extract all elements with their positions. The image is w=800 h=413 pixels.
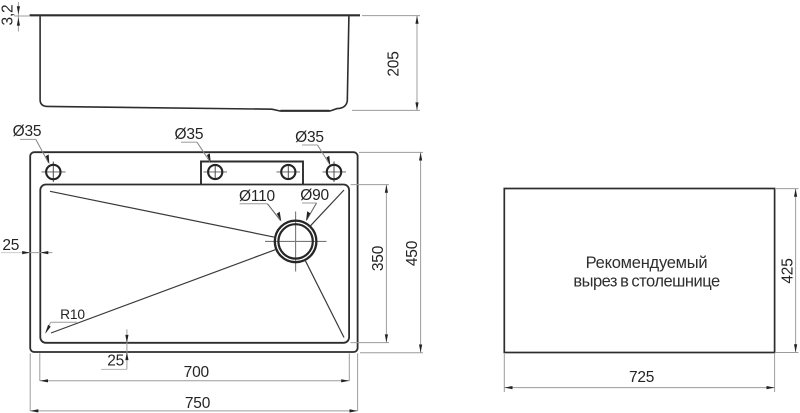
svg-text:700: 700 bbox=[184, 364, 210, 381]
svg-text:Ø35: Ø35 bbox=[295, 129, 324, 146]
svg-text:25: 25 bbox=[2, 237, 19, 254]
svg-text:Ø90: Ø90 bbox=[300, 187, 329, 204]
svg-text:Ø35: Ø35 bbox=[13, 123, 42, 140]
svg-text:Ø35: Ø35 bbox=[175, 126, 204, 143]
svg-text:Ø110: Ø110 bbox=[239, 188, 276, 205]
svg-text:350: 350 bbox=[370, 245, 387, 271]
svg-text:вырез в столешнице: вырез в столешнице bbox=[573, 273, 720, 291]
svg-text:Рекомендуемый: Рекомендуемый bbox=[586, 254, 708, 272]
svg-text:450: 450 bbox=[404, 240, 421, 266]
svg-text:750: 750 bbox=[185, 395, 211, 412]
svg-text:3,2: 3,2 bbox=[0, 5, 17, 26]
svg-text:425: 425 bbox=[780, 258, 797, 283]
svg-text:725: 725 bbox=[629, 369, 654, 386]
svg-text:25: 25 bbox=[107, 353, 124, 370]
svg-text:205: 205 bbox=[386, 51, 403, 76]
svg-text:R10: R10 bbox=[60, 307, 85, 322]
